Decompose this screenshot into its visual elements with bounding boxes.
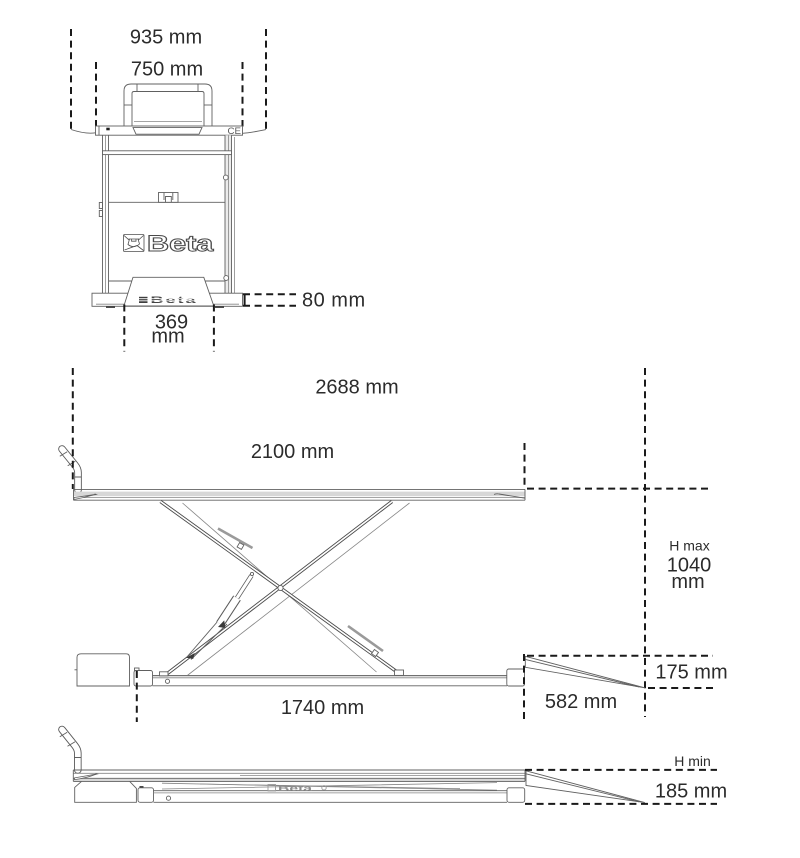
svg-text:2688 mm: 2688 mm [315,377,398,399]
svg-text:175 mm: 175 mm [655,662,727,684]
svg-text:80 mm: 80 mm [302,290,366,312]
svg-text:H min: H min [674,753,711,769]
svg-text:mm: mm [671,571,704,593]
svg-text:582 mm: 582 mm [545,691,617,713]
svg-text:mm: mm [151,326,184,348]
svg-text:935 mm: 935 mm [130,27,202,49]
svg-text:H max: H max [669,538,709,554]
svg-text:1740 mm: 1740 mm [281,697,364,719]
svg-text:750 mm: 750 mm [131,58,203,80]
svg-text:CE: CE [228,126,242,136]
svg-text:2100 mm: 2100 mm [251,441,334,463]
svg-text:Beta: Beta [147,231,214,256]
svg-text:185 mm: 185 mm [655,781,727,803]
svg-text:Beta: Beta [278,784,313,793]
